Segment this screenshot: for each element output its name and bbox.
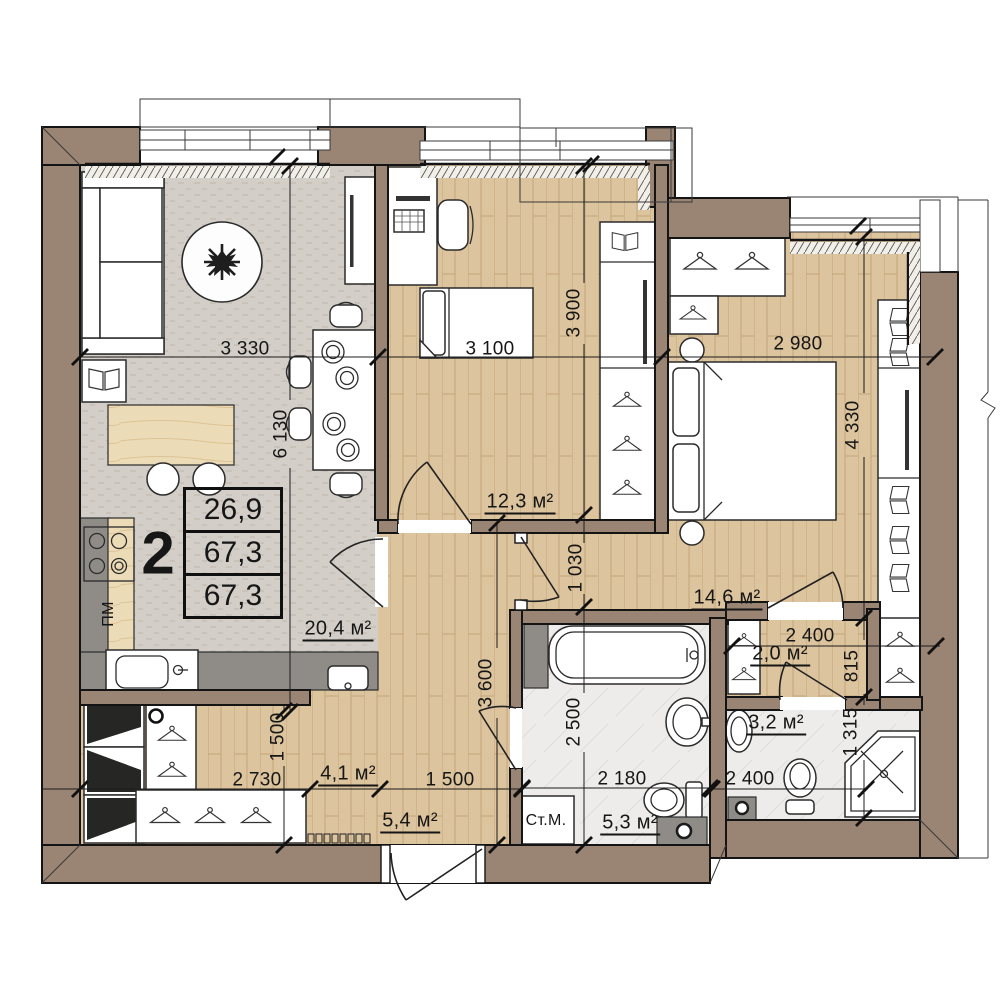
dim-bathroom2-depth: 1 315 <box>842 707 861 756</box>
apartment-info-box: 26,9 67,3 67,3 <box>183 487 283 619</box>
dishwasher-label: ПМ <box>101 601 117 626</box>
wardrobe-bedroom2 <box>600 222 655 520</box>
kitchen-sink-icon <box>106 650 198 694</box>
area-wardrobe: 2,0 м² <box>750 644 810 667</box>
area-bedroom2: 12,3 м² <box>485 492 556 515</box>
total-area-value2: 67,3 <box>186 573 280 616</box>
desk-chair <box>438 200 473 250</box>
dim-top-living: 3 330 <box>220 340 269 359</box>
area-hallway: 4,1 м² <box>318 764 378 787</box>
double-bed <box>668 362 836 545</box>
dim-bathroom1-depth: 2 500 <box>565 697 584 746</box>
dim-corridor-depth: 3 600 <box>477 658 496 707</box>
secondary-sink-icon <box>328 666 368 690</box>
dim-bathroom2-width: 2 400 <box>725 770 774 789</box>
dim-bathroom1-width: 2 180 <box>597 770 646 789</box>
dim-passage: 1 030 <box>567 543 586 592</box>
area-corridor: 5,4 м² <box>380 811 440 834</box>
dim-hall-width: 2 730 <box>232 771 281 790</box>
shelf-with-book <box>82 360 126 402</box>
area-living-kitchen: 20,4 м² <box>303 619 374 642</box>
bathroom2-toilet <box>784 759 816 814</box>
dim-corridor-width: 1 500 <box>425 771 474 790</box>
area-bathroom1: 5,3 м² <box>600 813 660 836</box>
rug-with-plant <box>182 222 262 302</box>
dim-bedroom1-depth: 4 330 <box>844 400 863 449</box>
shoe-cabinet <box>84 700 144 843</box>
living-area-value: 26,9 <box>186 490 280 530</box>
dim-top-bedroom2: 3 100 <box>465 340 514 359</box>
hall-closet-upper <box>146 705 196 790</box>
floor-plan: 3 330 3 100 2 980 6 130 3 900 1 030 2 50… <box>0 0 1000 1000</box>
total-area-value: 67,3 <box>186 530 280 573</box>
area-bathroom2: 3,2 м² <box>746 713 806 736</box>
bookshelf-bedroom1 <box>878 300 920 618</box>
sofa <box>82 172 164 354</box>
dim-top-bedroom1: 2 980 <box>773 335 822 354</box>
dim-hall-depth: 1 500 <box>269 712 288 761</box>
dim-bedroom2-depth: 3 900 <box>565 288 584 337</box>
rooms-count: 2 <box>141 519 174 588</box>
floor-drain-mat <box>657 817 707 845</box>
dim-living-depth: 6 130 <box>272 409 291 458</box>
bar-stool <box>147 463 179 495</box>
dim-wardrobe-depth: 815 <box>843 650 862 683</box>
washing-machine-label: Ст.М. <box>526 813 567 829</box>
area-bedroom1: 14,6 м² <box>692 588 763 611</box>
bathroom2-cabinet <box>728 797 756 820</box>
tv-unit <box>345 177 376 284</box>
